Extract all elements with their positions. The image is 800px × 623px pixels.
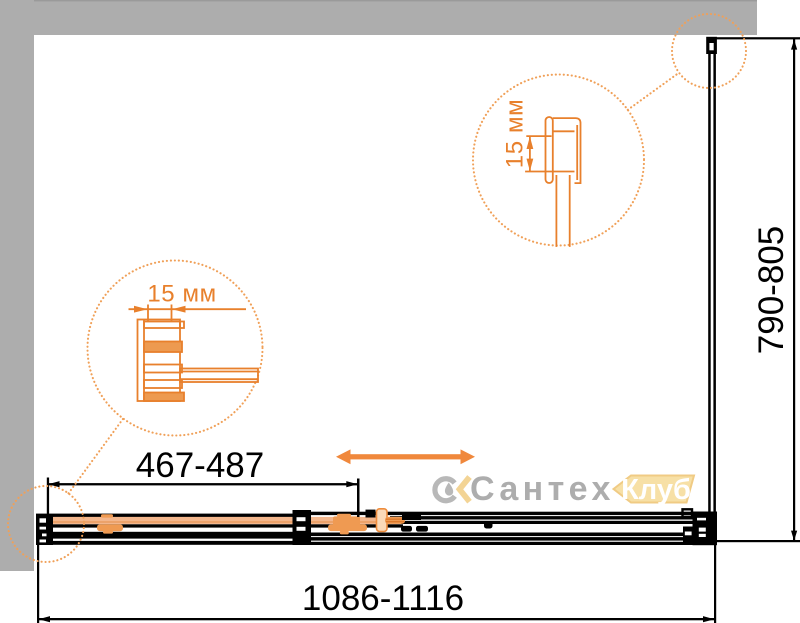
svg-text:Сантех: Сантех (470, 470, 615, 508)
svg-text:15 мм: 15 мм (502, 99, 529, 168)
svg-text:Клуб: Клуб (621, 474, 691, 506)
svg-text:1086-1116: 1086-1116 (302, 579, 464, 618)
svg-text:790-805: 790-805 (752, 226, 791, 354)
svg-text:15 мм: 15 мм (147, 281, 216, 308)
svg-text:467-487: 467-487 (136, 446, 264, 485)
